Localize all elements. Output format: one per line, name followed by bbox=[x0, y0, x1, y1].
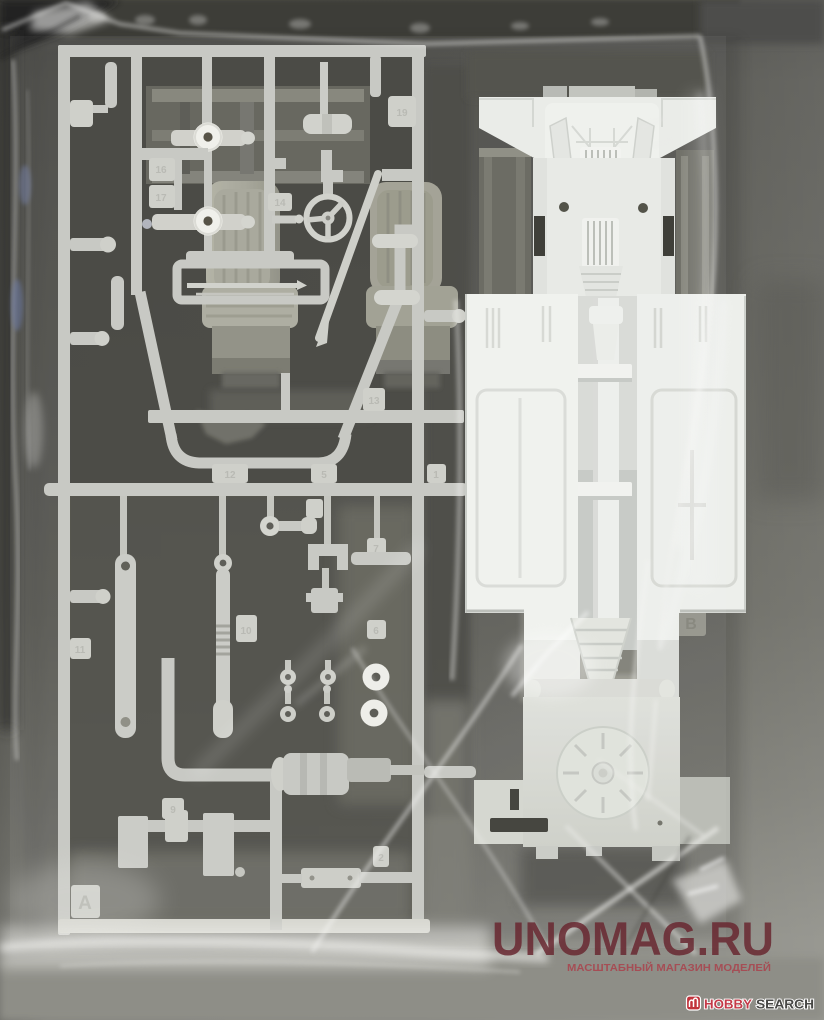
svg-text:UNOMAG.RU: UNOMAG.RU bbox=[492, 912, 774, 965]
svg-text:HOBBY: HOBBY bbox=[704, 998, 753, 1012]
svg-text:SEARCH: SEARCH bbox=[756, 998, 814, 1012]
svg-text:МАСШТАБНЫЙ МАГАЗИН МОДЕЛЕЙ: МАСШТАБНЫЙ МАГАЗИН МОДЕЛЕЙ bbox=[567, 961, 771, 974]
